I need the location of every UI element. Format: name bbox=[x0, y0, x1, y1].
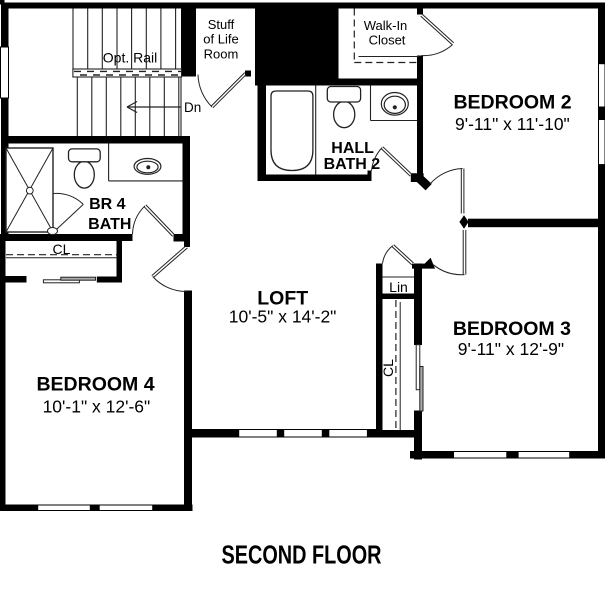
svg-text:Stuff: Stuff bbox=[208, 17, 235, 32]
svg-text:of Life: of Life bbox=[203, 32, 238, 47]
svg-text:BEDROOM 2: BEDROOM 2 bbox=[453, 92, 571, 114]
svg-text:HALL: HALL bbox=[331, 140, 374, 157]
svg-text:CL: CL bbox=[380, 359, 396, 377]
svg-text:Walk-In: Walk-In bbox=[364, 18, 408, 33]
svg-text:Closet: Closet bbox=[369, 33, 406, 48]
svg-text:Room: Room bbox=[204, 47, 239, 62]
svg-text:BATH: BATH bbox=[88, 216, 131, 233]
svg-text:Lin: Lin bbox=[389, 279, 408, 295]
svg-text:Dn: Dn bbox=[184, 100, 201, 115]
svg-text:9'-11" x 11'-10": 9'-11" x 11'-10" bbox=[455, 114, 570, 134]
svg-text:Opt. Rail: Opt. Rail bbox=[103, 50, 157, 66]
svg-text:BEDROOM 3: BEDROOM 3 bbox=[453, 318, 571, 340]
svg-text:SECOND FLOOR: SECOND FLOOR bbox=[222, 542, 382, 570]
svg-text:9'-11" x 12'-9": 9'-11" x 12'-9" bbox=[458, 339, 564, 359]
svg-text:BR 4: BR 4 bbox=[89, 196, 126, 213]
svg-text:10'-1" x 12'-6": 10'-1" x 12'-6" bbox=[43, 397, 151, 417]
svg-text:10'-5" x 14'-2": 10'-5" x 14'-2" bbox=[229, 307, 337, 327]
svg-text:BEDROOM 4: BEDROOM 4 bbox=[36, 374, 154, 396]
